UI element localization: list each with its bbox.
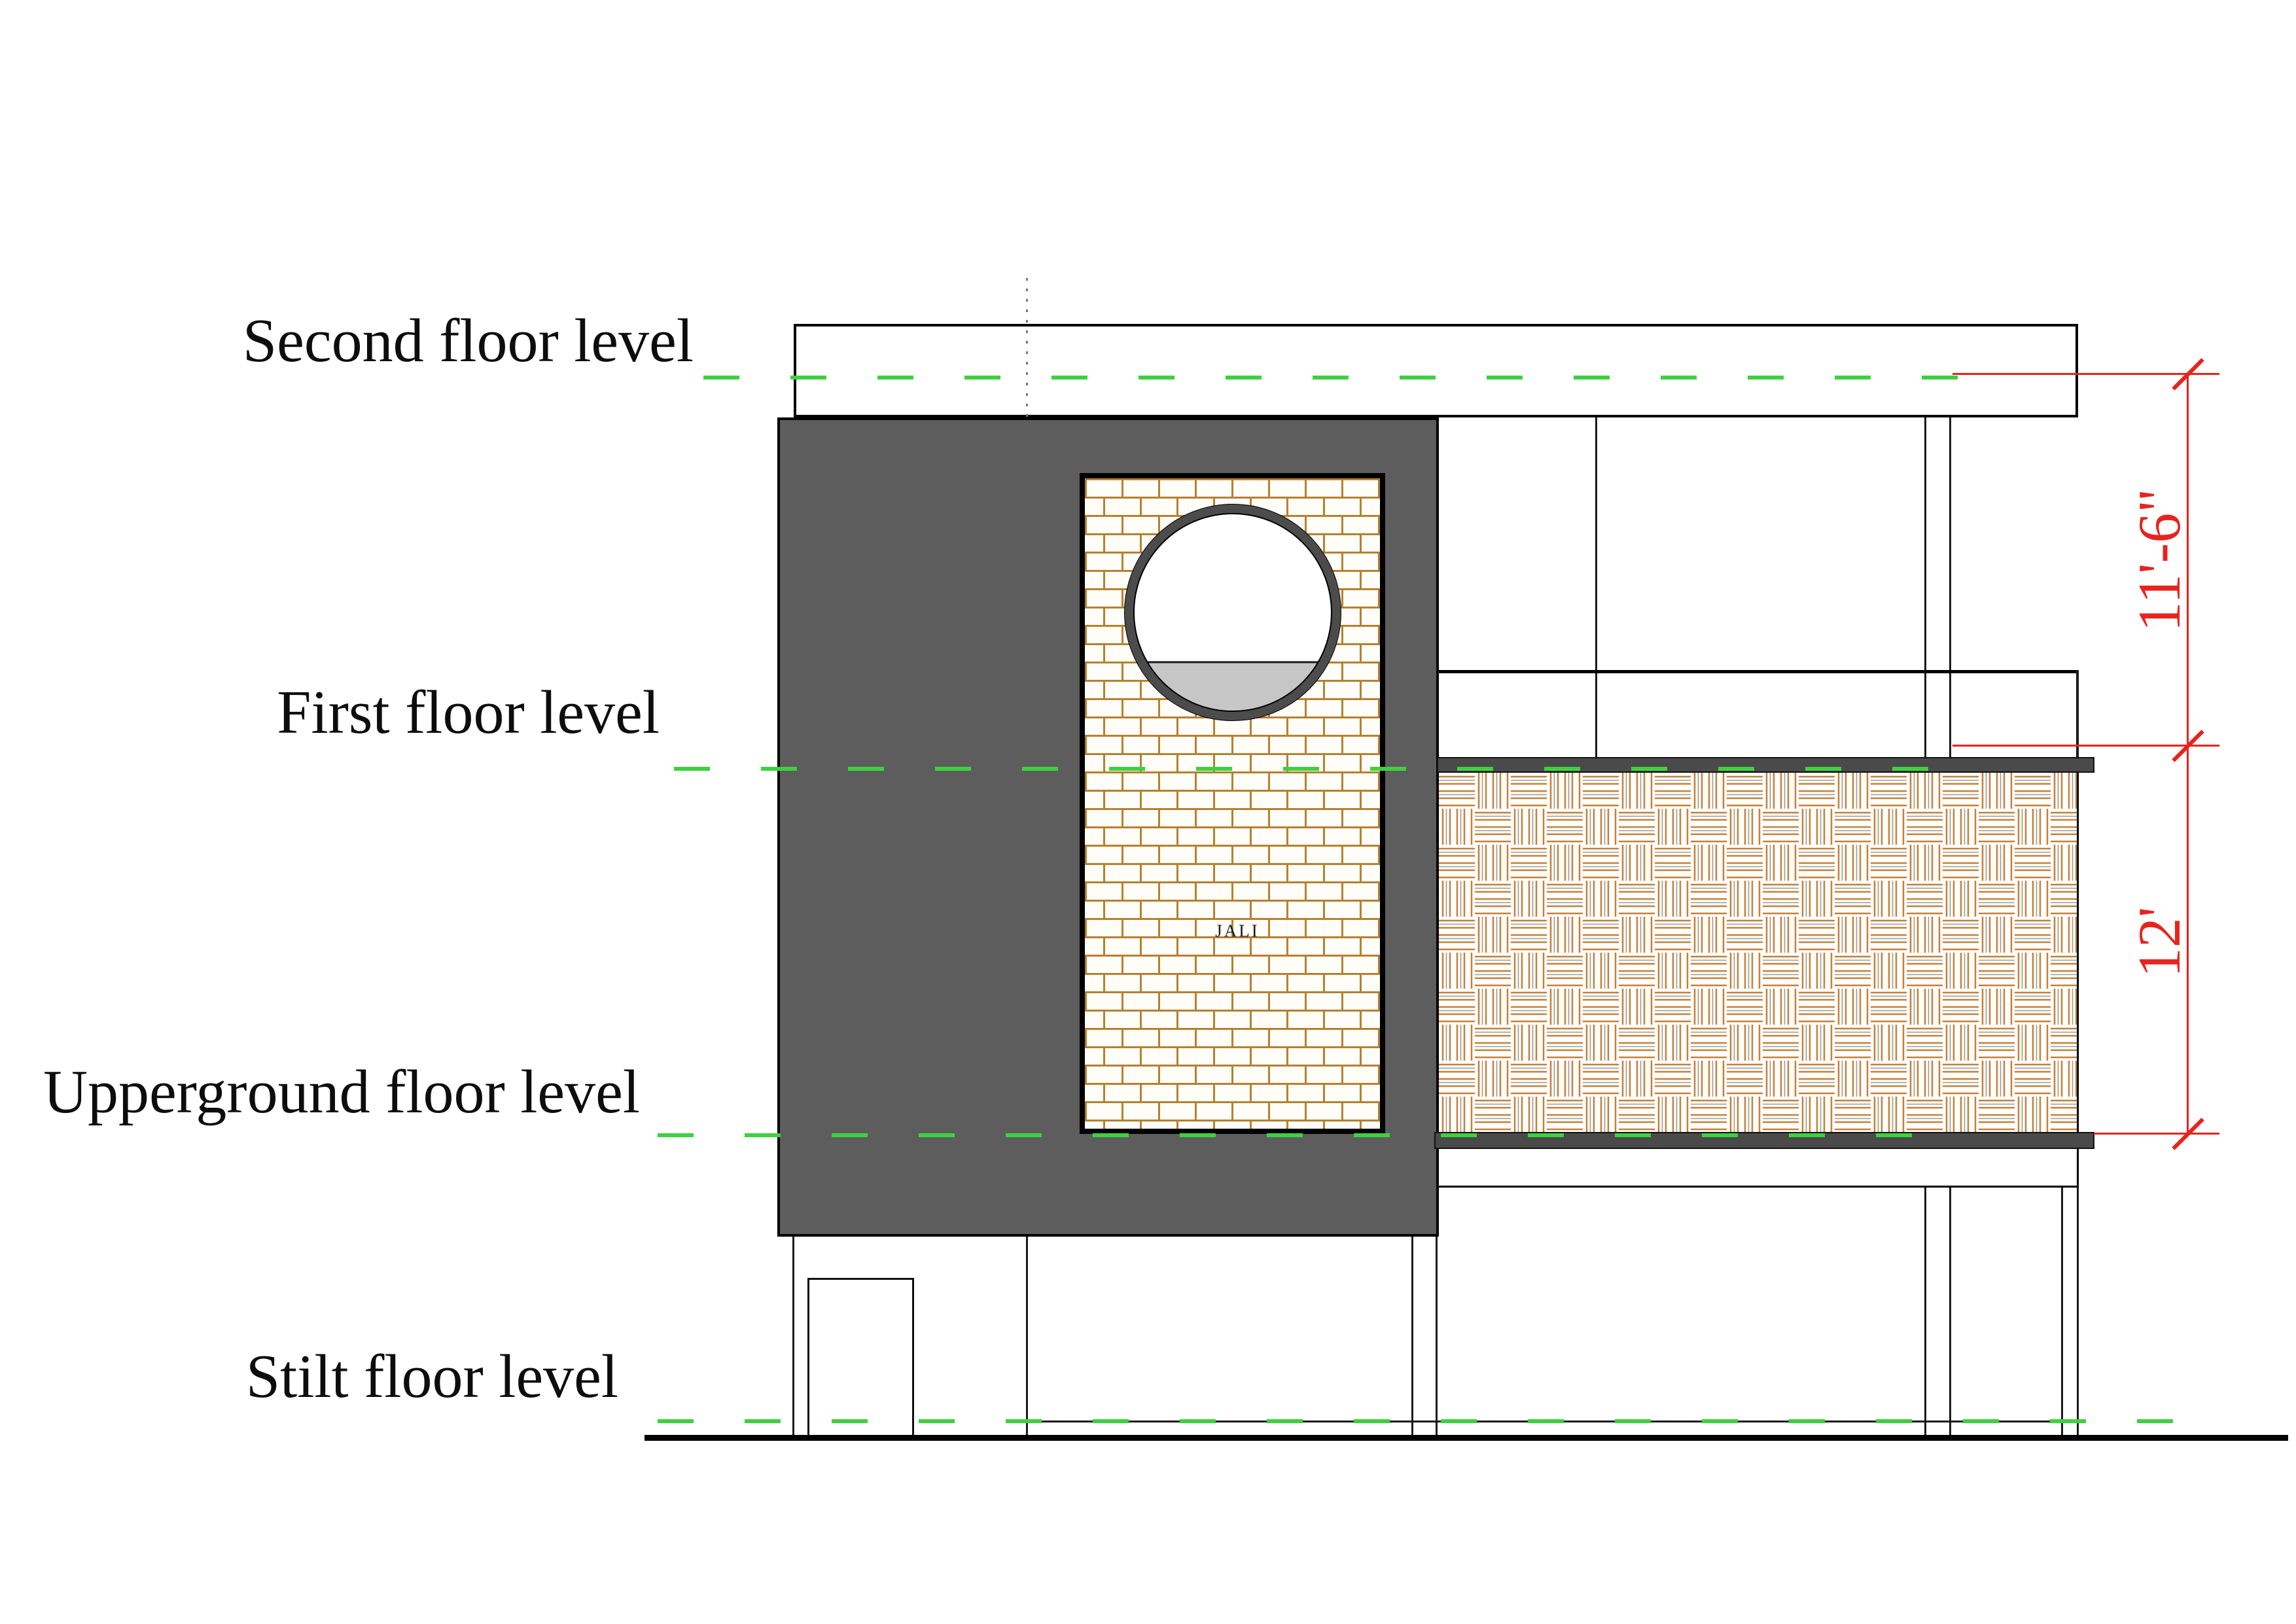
column-left-edge (1924, 417, 1926, 757)
dim-extension-bottom (2094, 1133, 2219, 1135)
upperground-floor-level-label: Upperground floor level (43, 1059, 640, 1126)
stilt-floor-level-label: Stilt floor level (246, 1343, 618, 1411)
circular-window (1124, 504, 1341, 721)
basket-weave-pattern (1439, 773, 2077, 1132)
stilt-column-1 (1026, 1237, 1028, 1438)
balcony-parapet-brick-panel (1439, 773, 2079, 1132)
dim-text-11-6: 11'-6" (2129, 488, 2189, 631)
stilt-column-2-right (1436, 1237, 1438, 1438)
stilt-beam-band (1439, 1149, 2079, 1188)
first-floor-level-label: First floor level (277, 679, 660, 747)
first-floor-slab-line (1439, 670, 2079, 673)
upperground-floor-level-line (658, 1133, 1955, 1137)
column-right-edge (1949, 417, 1951, 757)
second-floor-level-line (703, 376, 1986, 380)
column-line-a (1595, 417, 1597, 757)
jali-label: JALI (1215, 921, 1260, 942)
second-floor-level-label: Second floor level (243, 308, 694, 375)
ground-line (645, 1435, 2288, 1441)
centerline-dotted (1026, 278, 1028, 419)
stilt-door-opening (807, 1278, 914, 1439)
dim-text-12: 12' (2129, 907, 2189, 978)
stilt-column-2-left (1411, 1237, 1413, 1438)
dim-extension-top (1952, 373, 2219, 375)
elevation-drawing: Second floor level First floor level Upp… (0, 0, 2296, 1624)
second-floor-roof-slab (794, 324, 2078, 417)
stilt-floor-level-line (658, 1419, 2183, 1423)
building-right-edge (2077, 1149, 2079, 1438)
stilt-column-3-right (1949, 1188, 1951, 1438)
dim-extension-mid (1952, 745, 2219, 747)
first-floor-level-line (674, 767, 1955, 771)
stilt-column-3-left (1924, 1188, 1926, 1438)
stilt-column-4-left (2061, 1188, 2063, 1438)
wall-line-left (792, 1237, 794, 1438)
